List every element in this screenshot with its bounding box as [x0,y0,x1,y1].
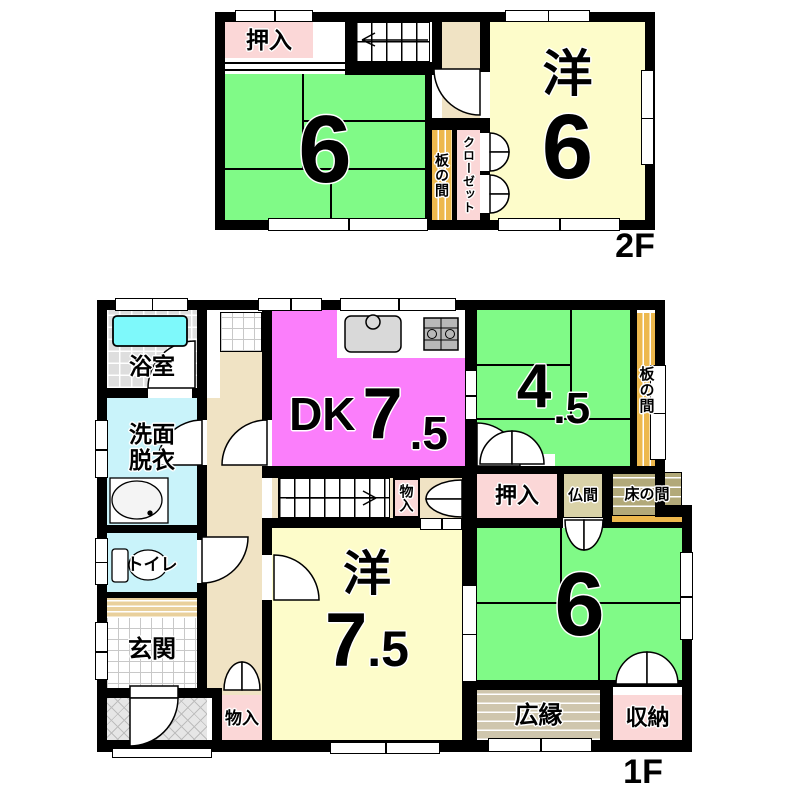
floor-plan: 押入 6 板の間 クローゼット 洋 6 2F 浴室 洗面脱衣 トイレ 玄関 DK… [0,0,800,800]
wall [97,525,207,533]
door-gap [262,420,272,465]
wall [477,518,563,528]
label-storage-entry: 物入 [222,700,262,736]
window [235,10,313,22]
wall [480,22,490,72]
hallway-upper [220,352,262,398]
label-floor-1f: 1F [608,750,678,794]
wall [197,398,207,420]
label-2f-western6: 洋 6 [490,28,645,213]
window [268,218,428,231]
window [340,298,456,311]
label-storage-hall: 物入 [393,478,420,518]
entrance-step [107,598,197,618]
wall [480,118,490,133]
label-storage-south: 収納 [613,700,682,736]
wall [262,528,272,555]
label-tatami45-size: 4 .5 [477,343,630,431]
wall [262,310,272,420]
storage-shelf [613,687,682,695]
window [330,742,440,754]
window [95,538,108,585]
wall [612,522,682,528]
sliding-opening [465,370,477,420]
wall [345,12,355,64]
wall [613,680,682,687]
shelf-line [225,62,345,64]
label-2f-closet: クローゼット [456,130,481,220]
closet-shelf [225,58,345,74]
door-gap [197,420,207,465]
wall [262,518,420,528]
wall [465,420,477,466]
label-western75: 洋 7 .5 [272,535,462,695]
wall [197,583,207,698]
stairs-2f [355,22,430,62]
wall [197,300,207,398]
wall [462,682,477,740]
label-floor-2f: 2F [600,226,670,266]
wall [97,592,207,598]
label-butsuma: 仏間 [563,474,603,516]
label-tatami6-1f-size: 6 [477,535,682,675]
wall [432,12,442,64]
door-gap [197,540,207,583]
label-2f-oshiire: 押入 [225,22,313,58]
wall [212,688,222,752]
wall [262,600,272,752]
label-2f-itanoma: 板の間 [431,130,453,220]
door-gap [148,388,192,398]
shelf-line [225,69,345,71]
stairs-1f [278,478,390,518]
label-veranda: 広縁 [477,696,600,736]
porch-step [112,748,212,758]
hallway [207,398,262,698]
label-2f-tatami6-size: 6 [225,90,425,210]
wall [215,12,225,230]
door-gap [262,555,272,600]
label-entrance: 玄関 [107,630,197,670]
wall [603,466,612,528]
door-gap [480,72,490,118]
wall [480,171,490,175]
label-tokonoma: 床の間 [612,476,682,512]
kitchen-counter [337,310,465,358]
wall [477,680,613,690]
window [115,298,188,311]
label-bath: 浴室 [107,348,197,384]
sliding-opening [420,518,462,530]
sliding-opening [462,585,477,682]
back-door-tile [220,312,262,352]
label-dk: DK 7 .5 [272,372,465,456]
wall [600,680,613,740]
wall [477,466,655,474]
window [505,10,590,22]
wall [480,213,490,220]
label-toilet: トイレ [110,545,194,583]
wall [462,466,477,585]
label-oshiire-1f: 押入 [477,476,557,516]
label-itanoma-1f: 板の間 [635,320,657,460]
window [488,738,592,752]
wall [465,300,477,370]
wall [97,688,222,698]
entrance-porch [105,698,207,740]
window [258,298,322,311]
oshiire-shelf [479,454,555,466]
label-washroom: 洗面脱衣 [107,415,197,479]
room-2f-hall [442,22,483,118]
wall [262,466,477,478]
